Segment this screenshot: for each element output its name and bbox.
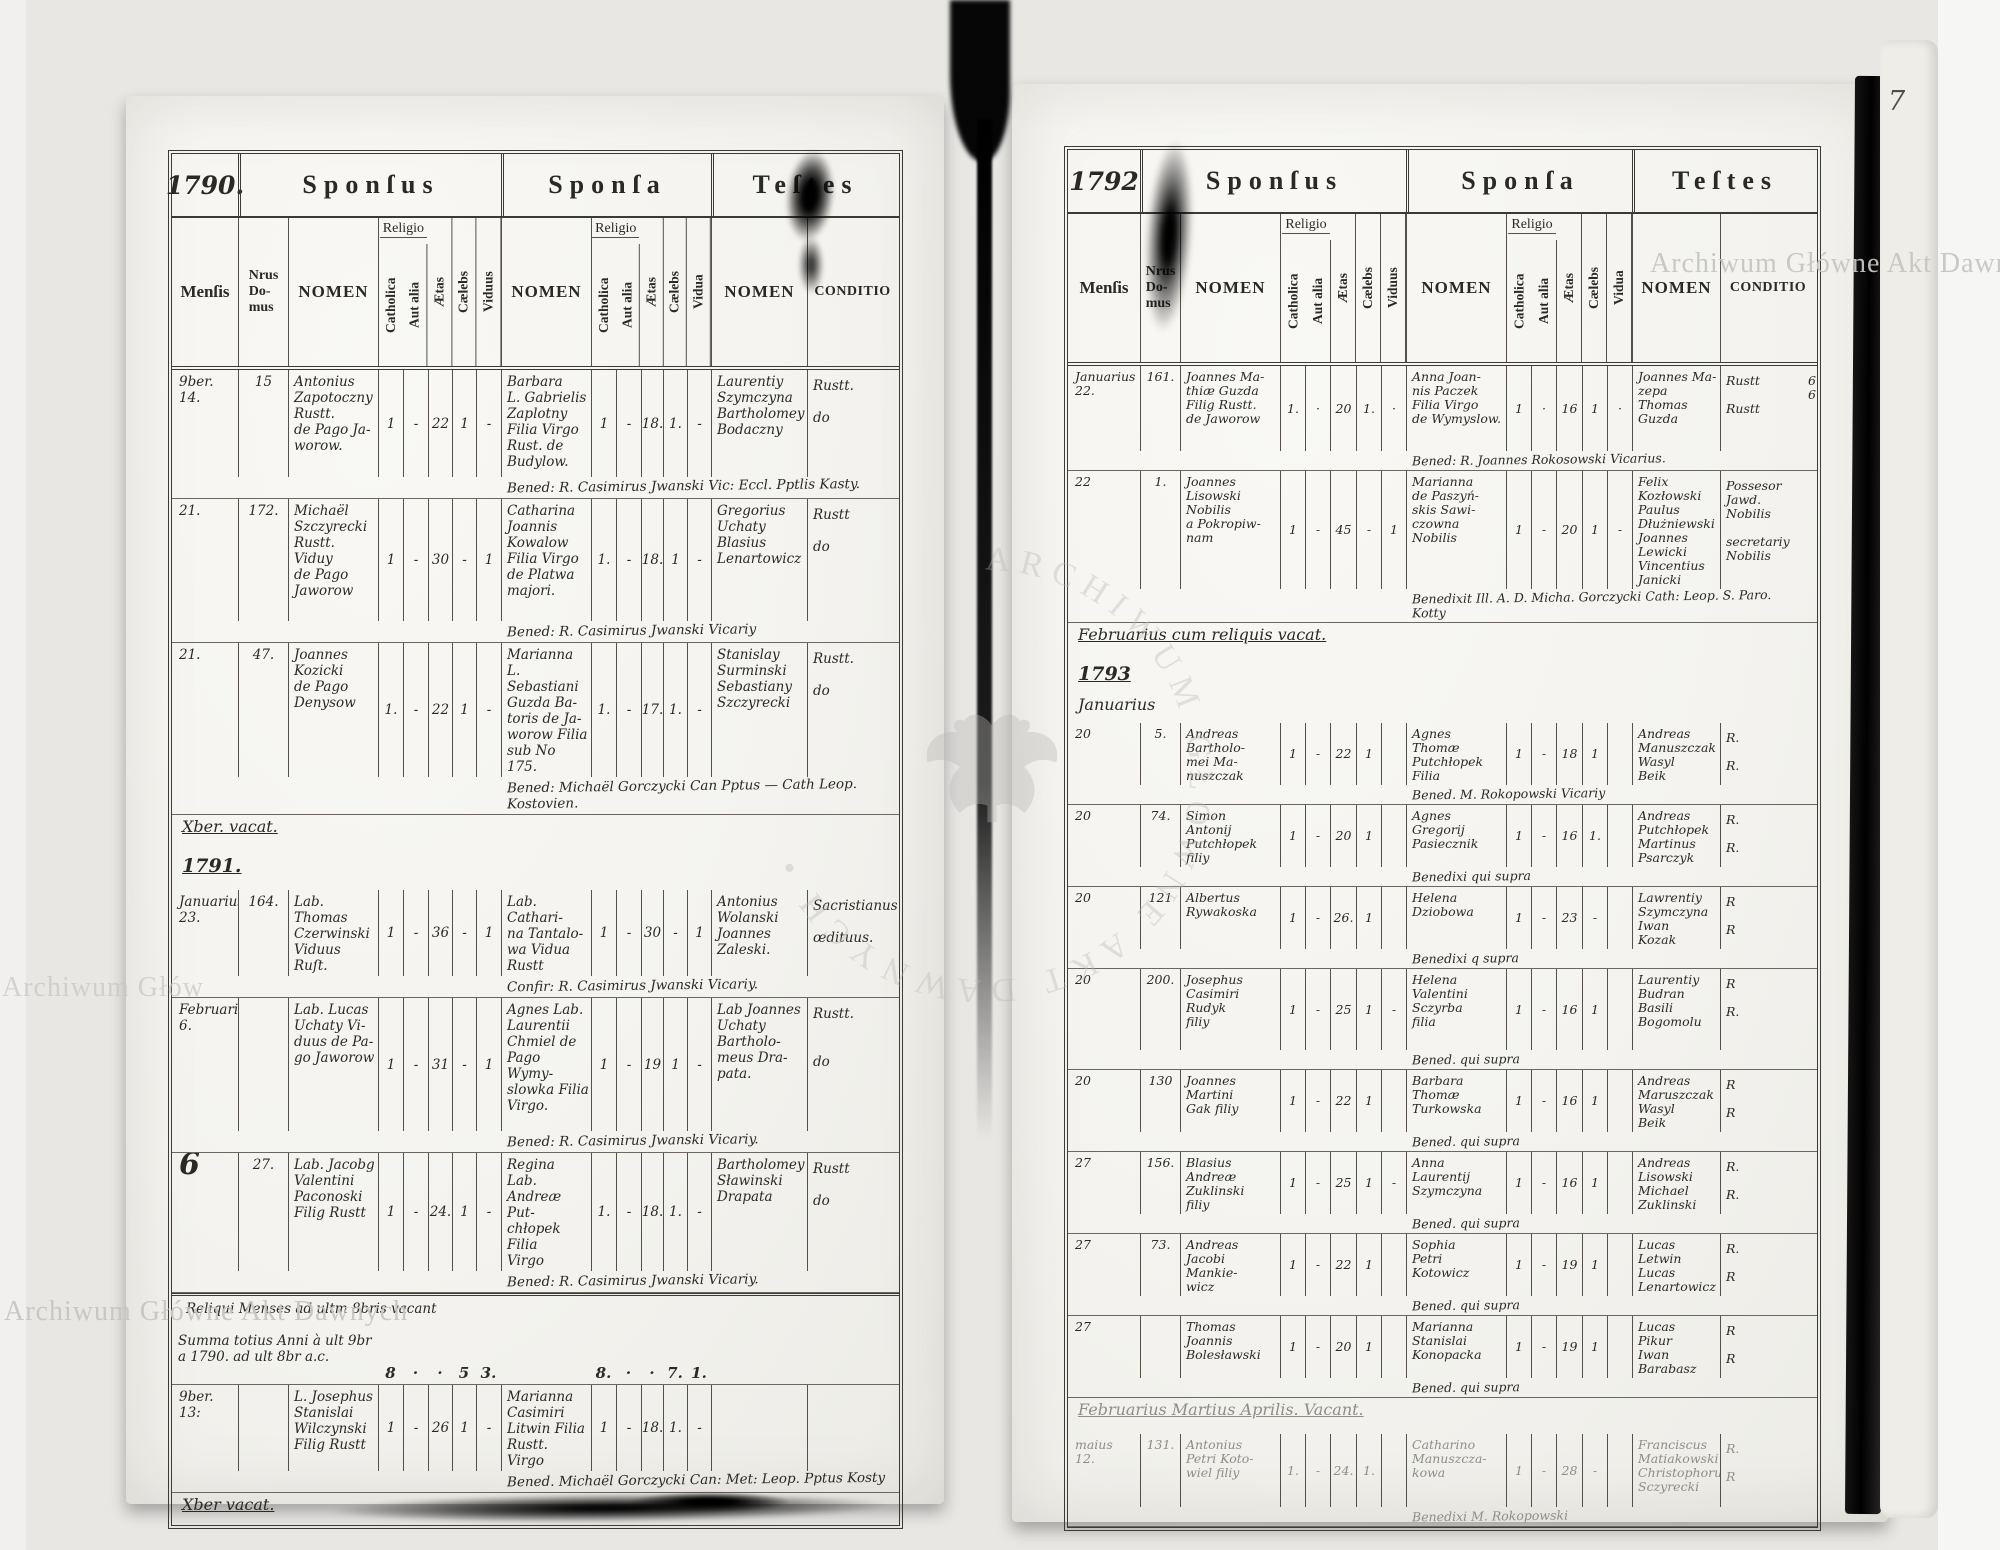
groom-other-cell: - — [1305, 1234, 1330, 1296]
summary-stat: · — [641, 1333, 663, 1384]
bride-religio-group: Religio Catholica Aut alia Ætas Cælebs V… — [1506, 214, 1632, 362]
groom-catholic-cell: 1 — [1280, 1070, 1305, 1132]
groom-widower-cell: - — [476, 1385, 501, 1471]
groom-single-cell: 1 — [1356, 1234, 1381, 1296]
benediction-note: Bened. qui supra — [1406, 1130, 1815, 1154]
groom-other-cell: - — [1305, 969, 1330, 1050]
house-number-cell: 121 — [1140, 887, 1180, 949]
groom-name-cell: Andreas Bartholo- mei Ma- nuszczak — [1180, 723, 1280, 785]
groom-age-cell: 22 — [428, 370, 452, 477]
bride-widow-cell — [1607, 1070, 1632, 1132]
bride-name-cell: Sophia Petri Kotowicz — [1406, 1234, 1506, 1296]
month-day-cell: 20 — [1068, 805, 1140, 867]
register-page-left: 1790. Sponſus Sponſa Teſtes Menſis Nrus … — [126, 96, 944, 1504]
month-day-cell: 21. — [172, 499, 238, 621]
witnesses-condition-cell: R R — [1720, 887, 1815, 949]
religio-label: Religio — [592, 218, 640, 244]
bride-name-cell: Agnes Gregorij Pasiecznik — [1406, 805, 1506, 867]
register-record: 20 200. Josephus Casimiri Rudyk filiy 1 … — [1068, 969, 1817, 1070]
ink-stain — [781, 148, 838, 245]
groom-catholic-cell: 1. — [1280, 366, 1305, 451]
groom-other-cell: - — [1305, 887, 1330, 949]
section-note-text: 1791. — [182, 858, 242, 874]
marriage-register-scan: 1790. Sponſus Sponſa Teſtes Menſis Nrus … — [0, 0, 2000, 1550]
bride-single-cell: 1 — [1582, 471, 1607, 589]
bride-other-cell: - — [1531, 887, 1556, 949]
sponsus-header: Sponſus — [238, 154, 501, 216]
register-section-note: Februarius Martius Aprilis. Vacant. — [1068, 1398, 1817, 1434]
bride-widow-cell: - — [1607, 471, 1632, 589]
col-catholica: Catholica — [592, 244, 616, 366]
col-conditio: CONDITIO — [1720, 214, 1815, 362]
register-record: 20 130 Joannes Martini Gak filiy 1 - 22 … — [1068, 1070, 1817, 1152]
bride-other-cell: - — [1531, 1234, 1556, 1296]
bride-single-cell: 1. — [663, 370, 687, 477]
groom-widower-cell — [1381, 1316, 1406, 1378]
bride-age-cell: 16 — [1556, 805, 1582, 867]
month-day-cell: Januarius. 23. — [172, 890, 238, 976]
bride-age-cell: 17. — [641, 643, 663, 777]
groom-widower-cell: 1 — [476, 890, 501, 976]
register-record: 9ber. 13: L. Josephus Stanislai Wilczyns… — [172, 1385, 899, 1493]
witnesses-condition-cell: Possesor Jawd. Nobilis secretariy Nobili… — [1720, 471, 1815, 589]
groom-name-cell: Andreas Jacobi Mankie- wicz — [1180, 1234, 1280, 1296]
bride-single-cell: 1. — [663, 643, 687, 777]
benediction-note: Bened. qui supra — [1406, 1212, 1815, 1236]
witnesses-condition-cell: R. R — [1720, 1434, 1815, 1507]
groom-single-cell: 1. — [1356, 366, 1381, 451]
bride-single-cell: 1 — [1582, 969, 1607, 1050]
register-record: Januarius. 23. 164. Lab. Thomas Czerwins… — [172, 890, 899, 998]
col-caelebs: Cælebs — [452, 218, 476, 366]
groom-age-cell: 20 — [1330, 366, 1356, 451]
bride-catholic-cell: 1 — [591, 370, 616, 477]
register-record: 6 27. Lab. Jacobg Valentini Paconoski Fi… — [172, 1153, 899, 1293]
bride-other-cell: - — [1531, 1316, 1556, 1378]
bride-widow-cell — [1607, 969, 1632, 1050]
records-left: 9ber. 14. 15 Antonius Zapotoczny Rustt. … — [172, 370, 899, 1525]
col-viduus: Viduus — [1381, 214, 1406, 362]
benediction-note: Bened. Michaël Gorczycki Can: Met: Leop.… — [501, 1469, 897, 1495]
bride-other-cell: - — [616, 643, 641, 777]
bride-age-cell: 28 — [1556, 1434, 1582, 1507]
groom-other-cell: - — [403, 643, 428, 777]
groom-age-cell: 20 — [1330, 805, 1356, 867]
benediction-note: Bened. qui supra — [1406, 1048, 1815, 1072]
groom-other-cell: - — [1305, 1070, 1330, 1132]
col-groom-name: NOMEN — [288, 218, 378, 366]
groom-other-cell: - — [1305, 1434, 1330, 1507]
groom-age-cell: 22 — [1330, 723, 1356, 785]
groom-single-cell: 1 — [1356, 1152, 1381, 1214]
month-day-cell: 22 — [1068, 471, 1140, 589]
bride-name-cell: Helena Dziobowa — [1406, 887, 1506, 949]
groom-catholic-cell: 1 — [1280, 805, 1305, 867]
col-aut-alia: Aut alia — [1532, 240, 1557, 362]
margin-marks: 6 6 — [1808, 374, 1816, 402]
register-section-note: Februarius cum reliquis vacat. — [1068, 623, 1817, 663]
house-number-cell: 156. — [1140, 1152, 1180, 1214]
bride-catholic-cell: 1. — [591, 499, 616, 621]
groom-single-cell: - — [1356, 471, 1381, 589]
groom-catholic-cell: 1 — [378, 370, 403, 477]
witnesses-names-cell: Laurentiy Budran Basili Bogomolu — [1632, 969, 1720, 1050]
col-caelebs: Cælebs — [663, 218, 687, 366]
section-note-text: 1793 — [1078, 667, 1131, 681]
register-record: 20 121 Albertus Rywakoska 1 - 26. 1 Hele… — [1068, 887, 1817, 969]
groom-widower-cell — [1381, 723, 1406, 785]
witnesses-names-cell: Andreas Manuszczak Wasyl Beik — [1632, 723, 1720, 785]
house-number-cell — [238, 1385, 288, 1471]
bride-other-cell: - — [616, 890, 641, 976]
summary-stat: · — [428, 1333, 452, 1384]
groom-single-cell: 1 — [452, 370, 476, 477]
bride-age-cell: 16 — [1556, 1070, 1582, 1132]
groom-name-cell: Joannes Kozicki de Pago Denysow — [288, 643, 378, 777]
bride-catholic-cell: 1 — [1506, 1070, 1531, 1132]
summary-line-2: Summa totius Anni à ult 9br a 1790. ad u… — [172, 1333, 378, 1384]
bottom-ink-smear — [330, 1491, 890, 1525]
bride-name-cell: Marianna de Paszyń- skis Sawi- czowna No… — [1406, 471, 1506, 589]
year-label: 1792 — [1068, 150, 1140, 212]
groom-catholic-cell: 1 — [1280, 1152, 1305, 1214]
bride-religio-group: Religio Catholica Aut alia Ætas Cælebs V… — [591, 218, 711, 366]
summary-stat: 5 — [452, 1333, 476, 1384]
bride-other-cell: - — [1531, 723, 1556, 785]
bride-single-cell: 1 — [663, 998, 687, 1131]
bride-widow-cell — [1607, 805, 1632, 867]
benediction-note: Bened: R. Casimirus Jwanski Vicariy. — [501, 1269, 897, 1295]
bride-widow-cell — [1607, 723, 1632, 785]
groom-widower-cell: - — [476, 643, 501, 777]
bride-single-cell: 1 — [1582, 723, 1607, 785]
witnesses-condition-cell: R R — [1720, 1316, 1815, 1378]
column-header-row-left: Menſis Nrus Do- mus NOMEN Religio Cathol… — [172, 218, 899, 370]
house-number-cell — [1140, 1316, 1180, 1378]
bride-age-cell: 19 — [1556, 1316, 1582, 1378]
bride-other-cell: - — [616, 998, 641, 1131]
bride-name-cell: Marianna Stanislai Konopacka — [1406, 1316, 1506, 1378]
groom-widower-cell — [1381, 805, 1406, 867]
col-vidua: Vidua — [687, 218, 711, 366]
groom-single-cell: 1 — [1356, 969, 1381, 1050]
house-number-cell: 73. — [1140, 1234, 1180, 1296]
bride-single-cell: 1. — [663, 1153, 687, 1271]
register-section-note: Xber. vacat. — [172, 815, 899, 854]
benediction-note: Bened: Michaël Gorczycki Can Pptus — Cat… — [501, 775, 897, 817]
groom-widower-cell — [1381, 1070, 1406, 1132]
testes-header: Teſtes — [1632, 150, 1815, 212]
groom-name-cell: Josephus Casimiri Rudyk filiy — [1180, 969, 1280, 1050]
summary-stat: 8 — [378, 1333, 403, 1384]
bride-single-cell: 1 — [1582, 1316, 1607, 1378]
records-right: Januarius 22. 161. Joannes Ma- thiæ Guzd… — [1068, 366, 1817, 1527]
bride-name-cell: Agnes Lab. Laurentii Chmiel de Pago Wymy… — [501, 998, 591, 1131]
groom-name-cell: Joannes Lisowski Nobilis a Pokropiw- nam — [1180, 471, 1280, 589]
bride-name-cell: Anna Joan- nis Paczek Filia Virgo de Wym… — [1406, 366, 1506, 451]
col-viduus: Viduus — [477, 218, 501, 366]
col-mensis: Menſis — [1068, 214, 1140, 362]
bride-age-cell: 30 — [641, 890, 663, 976]
groom-name-cell: Lab. Lucas Uchaty Vi- duus de Pa- go Jaw… — [288, 998, 378, 1131]
witnesses-condition-cell: R. R — [1720, 1234, 1815, 1296]
bride-single-cell: - — [1582, 1434, 1607, 1507]
groom-other-cell: - — [1305, 471, 1330, 589]
groom-name-cell: Lab. Jacobg Valentini Paconoski Filig Ru… — [288, 1153, 378, 1271]
witnesses-names-cell: Laurentiy Szymczyna Bartholomey Bodaczny — [711, 370, 807, 477]
witnesses-condition-cell: Rustt do — [807, 1153, 897, 1271]
register-section-note: 1791. — [172, 854, 899, 890]
groom-catholic-cell: 1 — [1280, 1316, 1305, 1378]
bride-widow-cell — [1607, 887, 1632, 949]
summary-stat: · — [403, 1333, 428, 1384]
bride-catholic-cell: 1. — [591, 643, 616, 777]
bride-other-cell: - — [616, 499, 641, 621]
groom-catholic-cell: 1. — [1280, 1434, 1305, 1507]
bride-catholic-cell: 1 — [1506, 471, 1531, 589]
witnesses-names-cell: Stanislay Surminski Sebastiany Szczyreck… — [711, 643, 807, 777]
groom-catholic-cell: 1 — [1280, 887, 1305, 949]
ink-stain-drip — [798, 236, 824, 294]
bride-other-cell: - — [616, 1153, 641, 1271]
bride-other-cell: - — [1531, 1152, 1556, 1214]
bride-name-cell: Anna Laurentij Szymczyna — [1406, 1152, 1506, 1214]
groom-age-cell: 22 — [1330, 1234, 1356, 1296]
house-number-cell: 1. — [1140, 471, 1180, 589]
bride-name-cell: Regina Lab. Andreæ Put- chłopek Filia Vi… — [501, 1153, 591, 1271]
groom-name-cell: Joannes Ma- thiæ Guzda Filig Rustt. de J… — [1180, 366, 1280, 451]
groom-widower-cell: · — [1381, 366, 1406, 451]
groom-widower-cell: - — [476, 370, 501, 477]
benediction-note: Benedixi q supra — [1406, 947, 1815, 971]
religio-label: Religio — [1507, 214, 1557, 240]
watermark-text-top: Archiwum Główne Akt Dawnych — [1650, 248, 2000, 280]
witnesses-names-cell: Andreas Maruszczak Wasyl Beik — [1632, 1070, 1720, 1132]
register-record: 22 1. Joannes Lisowski Nobilis a Pokropi… — [1068, 471, 1817, 623]
groom-age-cell: 24. — [1330, 1434, 1356, 1507]
groom-name-cell: Blasius Andreæ Zuklinski filiy — [1180, 1152, 1280, 1214]
bride-catholic-cell: 1 — [1506, 805, 1531, 867]
groom-name-cell: Thomas Joannis Bolesławski — [1180, 1316, 1280, 1378]
summary-stat: · — [616, 1333, 641, 1384]
col-aut-alia: Aut alia — [1306, 240, 1331, 362]
benediction-note: Benedixi M. Rokopowski — [1406, 1505, 1815, 1529]
summary-stat: 3. — [476, 1333, 501, 1384]
groom-widower-cell — [1381, 1234, 1406, 1296]
month-day-cell: maius 12. — [1068, 1434, 1140, 1507]
groom-name-cell: L. Josephus Stanislai Wilczynski Filig R… — [288, 1385, 378, 1471]
groom-widower-cell — [1381, 1434, 1406, 1507]
scan-right-margin — [1938, 0, 2000, 1550]
bride-age-cell: 18 — [1556, 723, 1582, 785]
groom-name-cell: Michaël Szczyrecki Rustt. Viduy de Pago … — [288, 499, 378, 621]
witnesses-names-cell: Felix Kozłowski Paulus Dłużniewski Joann… — [1632, 471, 1720, 589]
groom-widower-cell: 1 — [476, 499, 501, 621]
col-caelebs: Cælebs — [1356, 214, 1381, 362]
house-number-cell: 74. — [1140, 805, 1180, 867]
benediction-note: Bened: R. Casimirus Jwanski Vic: Eccl. P… — [501, 475, 897, 501]
witnesses-names-cell: Lucas Letwin Lucas Lenartowicz — [1632, 1234, 1720, 1296]
groom-age-cell: 31 — [428, 998, 452, 1131]
section-note-text: Xber vacat. — [182, 1497, 274, 1513]
bride-age-cell: 16 — [1556, 366, 1582, 451]
month-day-cell: 27 — [1068, 1234, 1140, 1296]
witnesses-condition-cell: R. R. — [1720, 805, 1815, 867]
bride-age-cell: 18. — [641, 499, 663, 621]
bride-name-cell: Barbara Thomæ Turkowska — [1406, 1070, 1506, 1132]
groom-single-cell: 1 — [452, 1385, 476, 1471]
groom-catholic-cell: 1 — [378, 1153, 403, 1271]
bride-widow-cell: 1 — [687, 890, 711, 976]
groom-name-cell: Simon Antonij Putchłopek filiy — [1180, 805, 1280, 867]
bride-name-cell: Lab. Cathari- na Tantalo- wa Vidua Rustt — [501, 890, 591, 976]
bride-single-cell: - — [663, 890, 687, 976]
bride-widow-cell: - — [687, 1153, 711, 1271]
groom-name-cell: Joannes Martini Gak filiy — [1180, 1070, 1280, 1132]
groom-catholic-cell: 1 — [1280, 723, 1305, 785]
col-catholica: Catholica — [379, 244, 403, 366]
register-record: 27 156. Blasius Andreæ Zuklinski filiy 1… — [1068, 1152, 1817, 1234]
month-day-cell: 9ber. 13: — [172, 1385, 238, 1471]
house-number-cell: 47. — [238, 643, 288, 777]
groom-age-cell: 36 — [428, 890, 452, 976]
benediction-note: Benedixi qui supra — [1406, 865, 1815, 889]
summary-stat: 8. — [591, 1333, 616, 1384]
register-record: 9ber. 14. 15 Antonius Zapotoczny Rustt. … — [172, 370, 899, 499]
bride-single-cell: - — [1582, 887, 1607, 949]
bride-widow-cell: · — [1607, 366, 1632, 451]
witnesses-names-cell: Bartholomey Sławinski Drapata — [711, 1153, 807, 1271]
bride-single-cell: 1 — [1582, 1152, 1607, 1214]
groom-other-cell: - — [1305, 805, 1330, 867]
bride-name-cell: Catharina Joannis Kowalow Filia Virgo de… — [501, 499, 591, 621]
witnesses-names-cell: Lawrentiy Szymczyna Iwan Kozak — [1632, 887, 1720, 949]
groom-catholic-cell: 1 — [378, 998, 403, 1131]
benediction-note: Benedixit Ill. A. D. Micha. Gorczycki Ca… — [1406, 587, 1815, 625]
groom-single-cell: 1 — [1356, 1316, 1381, 1378]
groom-widower-cell: 1 — [476, 998, 501, 1131]
groom-catholic-cell: 1. — [378, 643, 403, 777]
witnesses-condition-cell: R R. — [1720, 969, 1815, 1050]
groom-widower-cell: - — [476, 1153, 501, 1271]
bride-other-cell: - — [616, 1385, 641, 1471]
page-number: 7 — [1888, 86, 1905, 117]
house-number-cell: 5. — [1140, 723, 1180, 785]
register-record: 21. 47. Joannes Kozicki de Pago Denysow … — [172, 643, 899, 815]
col-bride-name: NOMEN — [1406, 214, 1506, 362]
groom-catholic-cell: 1 — [378, 890, 403, 976]
witnesses-names-cell: Franciscus Matiakowski Christophorus Scz… — [1632, 1434, 1720, 1507]
register-record: 20 74. Simon Antonij Putchłopek filiy 1 … — [1068, 805, 1817, 887]
witnesses-condition-cell: Rustt Rustt — [1720, 366, 1815, 451]
groom-single-cell: 1 — [1356, 887, 1381, 949]
bride-age-cell: 19 — [641, 998, 663, 1131]
bride-catholic-cell: 1 — [591, 998, 616, 1131]
groom-age-cell: 24. — [428, 1153, 452, 1271]
bride-age-cell: 16 — [1556, 1152, 1582, 1214]
house-number-cell: 131. — [1140, 1434, 1180, 1507]
groom-age-cell: 25 — [1330, 969, 1356, 1050]
groom-other-cell: - — [403, 1385, 428, 1471]
bride-name-cell: Marianna Casimiri Litwin Filia Rustt. Vi… — [501, 1385, 591, 1471]
groom-other-cell: - — [403, 890, 428, 976]
bride-catholic-cell: 1 — [1506, 366, 1531, 451]
month-day-cell: 21. — [172, 643, 238, 777]
witnesses-names-cell: Lucas Pikur Iwan Barabasz — [1632, 1316, 1720, 1378]
register-record: Februarius. 6. Lab. Lucas Uchaty Vi- duu… — [172, 998, 899, 1153]
house-number-cell — [238, 998, 288, 1131]
bride-single-cell: 1 — [1582, 1070, 1607, 1132]
bride-single-cell: 1 — [1582, 366, 1607, 451]
house-number-cell: 130 — [1140, 1070, 1180, 1132]
witnesses-condition-cell: Rustt do — [807, 499, 897, 621]
month-day-cell: 27 — [1068, 1316, 1140, 1378]
groom-religio-group: Religio Catholica Aut alia Ætas Cælebs V… — [378, 218, 501, 366]
bride-age-cell: 18. — [641, 1153, 663, 1271]
bride-age-cell: 16 — [1556, 969, 1582, 1050]
benediction-note: Bened. M. Rokopowski Vicariy — [1406, 783, 1815, 807]
month-day-cell: 9ber. 14. — [172, 370, 238, 477]
bride-widow-cell: - — [687, 1385, 711, 1471]
register-record: 21. 172. Michaël Szczyrecki Rustt. Viduy… — [172, 499, 899, 643]
groom-religio-group: Religio Catholica Aut alia Ætas Cælebs V… — [1280, 214, 1406, 362]
section-note-text: Februarius cum reliquis vacat. — [1078, 628, 1326, 642]
col-catholica: Catholica — [1507, 240, 1532, 362]
register-record: 27 Thomas Joannis Bolesławski 1 - 20 1 M… — [1068, 1316, 1817, 1398]
bride-name-cell: Barbara L. Gabrielis Zaplotny Filia Virg… — [501, 370, 591, 477]
bride-catholic-cell: 1. — [591, 1153, 616, 1271]
groom-age-cell: 25 — [1330, 1152, 1356, 1214]
groom-other-cell: - — [403, 370, 428, 477]
bride-age-cell: 20 — [1556, 471, 1582, 589]
bride-catholic-cell: 1 — [1506, 1316, 1531, 1378]
groom-catholic-cell: 1 — [1280, 471, 1305, 589]
groom-age-cell: 22 — [1330, 1070, 1356, 1132]
bride-catholic-cell: 1 — [1506, 969, 1531, 1050]
col-catholica: Catholica — [1281, 240, 1306, 362]
groom-single-cell: 1. — [1356, 1434, 1381, 1507]
house-number-cell: 164. — [238, 890, 288, 976]
col-aut-alia: Aut alia — [403, 244, 427, 366]
groom-catholic-cell: 1 — [378, 499, 403, 621]
groom-age-cell: 30 — [428, 499, 452, 621]
bride-name-cell: Helena Valentini Sczyrba filia — [1406, 969, 1506, 1050]
col-vidua: Vidua — [1607, 214, 1632, 362]
groom-age-cell: 26. — [1330, 887, 1356, 949]
bride-age-cell: 18. — [641, 370, 663, 477]
bride-catholic-cell: 1 — [1506, 1434, 1531, 1507]
bride-catholic-cell: 1 — [1506, 1234, 1531, 1296]
groom-single-cell: - — [452, 890, 476, 976]
house-number-cell: 15 — [238, 370, 288, 477]
witnesses-names-cell: Lab Joannes Uchaty Bartholo- meus Dra- p… — [711, 998, 807, 1131]
witnesses-condition-cell: Sacristianus œdituus. — [807, 890, 897, 976]
witnesses-condition-cell: Rustt. do — [807, 643, 897, 777]
benediction-note: Bened: R. Joannes Rokosowski Vicarius. — [1406, 449, 1815, 473]
register-record: 27 73. Andreas Jacobi Mankie- wicz 1 - 2… — [1068, 1234, 1817, 1316]
groom-widower-cell: - — [1381, 969, 1406, 1050]
month-day-cell: 20 — [1068, 969, 1140, 1050]
groom-widower-cell: - — [1381, 1152, 1406, 1214]
house-number-cell: 161. — [1140, 366, 1180, 451]
register-record: maius 12. 131. Antonius Petri Koto- wiel… — [1068, 1434, 1817, 1527]
groom-single-cell: - — [452, 499, 476, 621]
groom-catholic-cell: 1 — [1280, 1234, 1305, 1296]
witnesses-names-cell: Antonius Wolanski Joannes Zaleski. — [711, 890, 807, 976]
col-witness-name: NOMEN — [1632, 214, 1720, 362]
groom-age-cell: 45 — [1330, 471, 1356, 589]
month-day-cell: 20 — [1068, 887, 1140, 949]
